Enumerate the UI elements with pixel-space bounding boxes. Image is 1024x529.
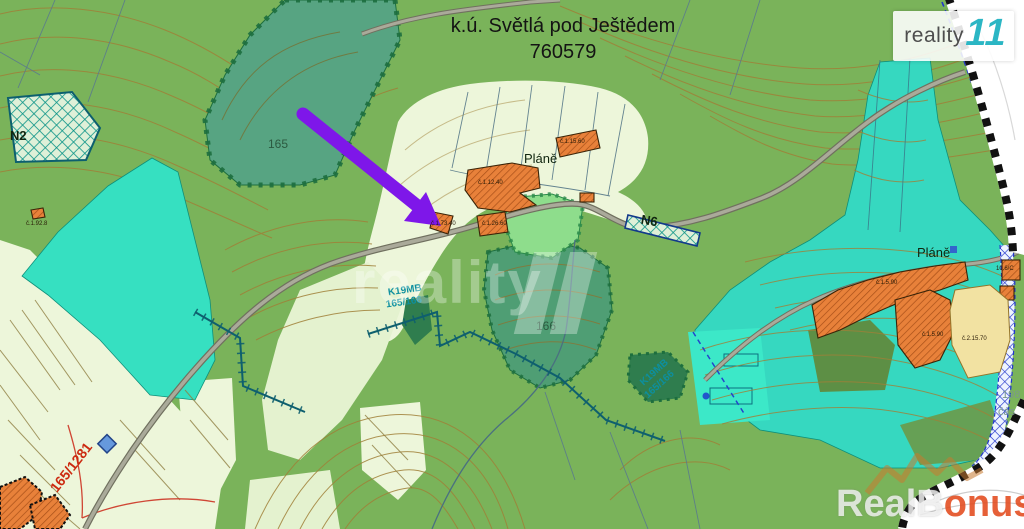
- parcel-label-165: 165: [268, 138, 288, 151]
- building-label: č.1.12.40: [478, 180, 503, 186]
- map-title-line2: 760579: [530, 42, 597, 63]
- reality11-logo-11-icon: 11: [961, 12, 1010, 55]
- building-label: č.1.73.40: [431, 221, 456, 227]
- building-label: č.1.5.90: [876, 280, 897, 286]
- parcel-label-n2: N2: [10, 129, 27, 143]
- building-label: č.1.26.60: [482, 221, 507, 227]
- building-label: 10.6/C: [996, 266, 1014, 272]
- parcel-label-n6: N6: [640, 213, 659, 229]
- realbonus-part1: RealB: [836, 483, 944, 525]
- cadastral-map-screenshot: k.ú. Světlá pod Ještědem 760579 165 N2 1…: [0, 0, 1024, 529]
- place-label-plane-right: Pláně: [917, 246, 950, 260]
- building-label: č.1.15.60: [560, 139, 585, 145]
- realbonus-watermark: RealBonus.cz: [836, 483, 1024, 526]
- map-title-line1: k.ú. Světlá pod Ještědem: [451, 16, 676, 37]
- building-label: č.1.5.90: [922, 332, 943, 338]
- place-label-plane-center: Pláně: [524, 152, 557, 166]
- building-label: č.1.92.8: [26, 221, 47, 227]
- edge-label-198: 198: [1002, 390, 1020, 402]
- building-label: č.2.15.70: [962, 336, 987, 342]
- edge-label-cas: čás: [998, 407, 1015, 419]
- reality11-logo: reality 11: [893, 11, 1014, 61]
- realbonus-part2: onus: [944, 483, 1024, 525]
- reality11-logo-text: reality: [904, 24, 964, 48]
- center-watermark-text: reality: [352, 248, 543, 317]
